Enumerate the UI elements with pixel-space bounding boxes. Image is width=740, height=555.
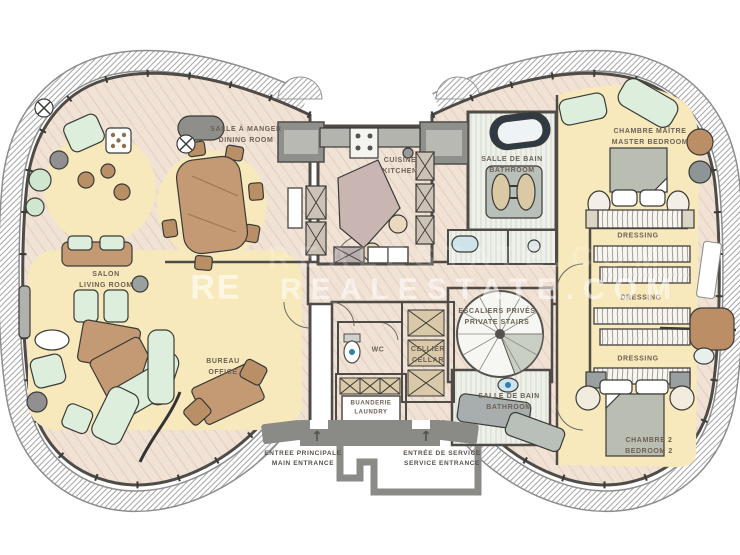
mirror <box>694 348 714 364</box>
ceiling-fan-icon <box>177 135 195 153</box>
office-sofa <box>148 330 174 404</box>
main-entrance-label: ENTREE PRINCIPALEMAIN ENTRANCE <box>264 449 341 469</box>
service-entrance-arrow-icon: ↑ <box>420 429 432 445</box>
armchair <box>74 290 98 322</box>
room-label-kitchen: CUISINEKITCHEN <box>382 156 417 178</box>
room-label-wc: WC <box>372 346 385 357</box>
master-bed <box>610 148 667 192</box>
pouf <box>27 392 47 412</box>
wall-console <box>19 286 30 338</box>
room-label-bedroom-2: CHAMBRE 2BEDROOM 2 <box>625 436 673 458</box>
pillow <box>636 380 668 394</box>
armchair <box>104 290 128 322</box>
pouf <box>101 164 115 178</box>
stove <box>350 128 378 158</box>
pillow <box>640 190 665 206</box>
room-label-laundry: BUANDERIELAUNDRY <box>350 400 391 419</box>
service-tub <box>452 236 478 252</box>
stool <box>389 215 407 233</box>
dining-table <box>175 154 250 255</box>
room-label-private-stairs: ESCALIERS PRIVÉSPRIVATE STAIRS <box>458 307 535 329</box>
main-entrance-arrow-icon: ↑ <box>311 429 323 445</box>
room-label-bathroom-top: SALLE DE BAINBATHROOM <box>481 155 542 177</box>
pillow <box>612 190 637 206</box>
pouf <box>50 151 68 169</box>
room-label-bathroom-bottom: SALLE DE BAINBATHROOM <box>478 392 539 414</box>
pouf <box>78 172 94 188</box>
elevator <box>334 247 408 263</box>
pouf <box>576 386 600 410</box>
room-label-dining: SALLE À MANGERDINING ROOM <box>210 125 281 147</box>
plant <box>26 198 44 216</box>
room-label-dressing-1: DRESSING <box>617 232 658 243</box>
service-entrance-label: ENTRÉE DE SERVICESERVICE ENTRANCE <box>403 449 481 469</box>
wardrobe <box>598 210 682 228</box>
room-label-office: BUREAUOFFICE <box>206 357 240 379</box>
plant <box>29 169 51 191</box>
room-label-living-room: SALONLIVING ROOM <box>79 270 133 292</box>
room-label-cellar: CELLIERCELLAR <box>411 345 445 367</box>
pouf <box>687 129 713 155</box>
sink <box>492 174 510 210</box>
sink <box>517 174 535 210</box>
floor-plan-page: SALLE À MANGERDINING ROOM CUISINEKITCHEN… <box>0 0 740 555</box>
tall-cabinet <box>288 188 302 228</box>
pouf <box>689 161 711 183</box>
shower-head <box>528 240 540 252</box>
stool <box>132 276 148 292</box>
pouf <box>670 386 694 410</box>
room-label-dressing-2: DRESSING <box>620 294 661 305</box>
spiral-staircase <box>457 291 543 377</box>
ceiling-fan-icon <box>35 99 53 117</box>
room-label-dressing-3: DRESSING <box>617 355 658 366</box>
coffee-table <box>35 330 69 350</box>
pouf <box>114 184 130 200</box>
room-label-master-bedroom: CHAMBRE MAÎTREMASTER BEDROOM <box>612 127 688 149</box>
pillow <box>600 380 632 394</box>
